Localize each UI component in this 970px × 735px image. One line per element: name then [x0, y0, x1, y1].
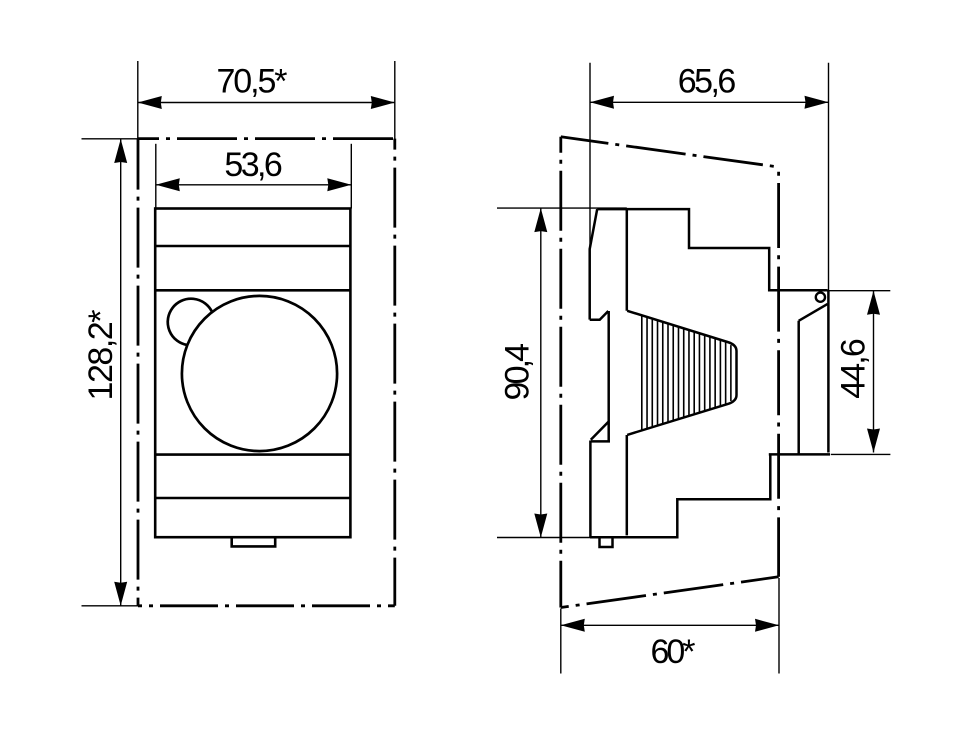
svg-text:128,2*: 128,2* [82, 310, 120, 401]
svg-text:44,6: 44,6 [835, 338, 873, 399]
svg-text:70,5*: 70,5* [217, 63, 288, 101]
svg-text:65,6: 65,6 [678, 62, 737, 100]
svg-text:60*: 60* [651, 633, 696, 671]
svg-text:90,4: 90,4 [499, 343, 537, 401]
svg-text:53,6: 53,6 [224, 146, 283, 184]
